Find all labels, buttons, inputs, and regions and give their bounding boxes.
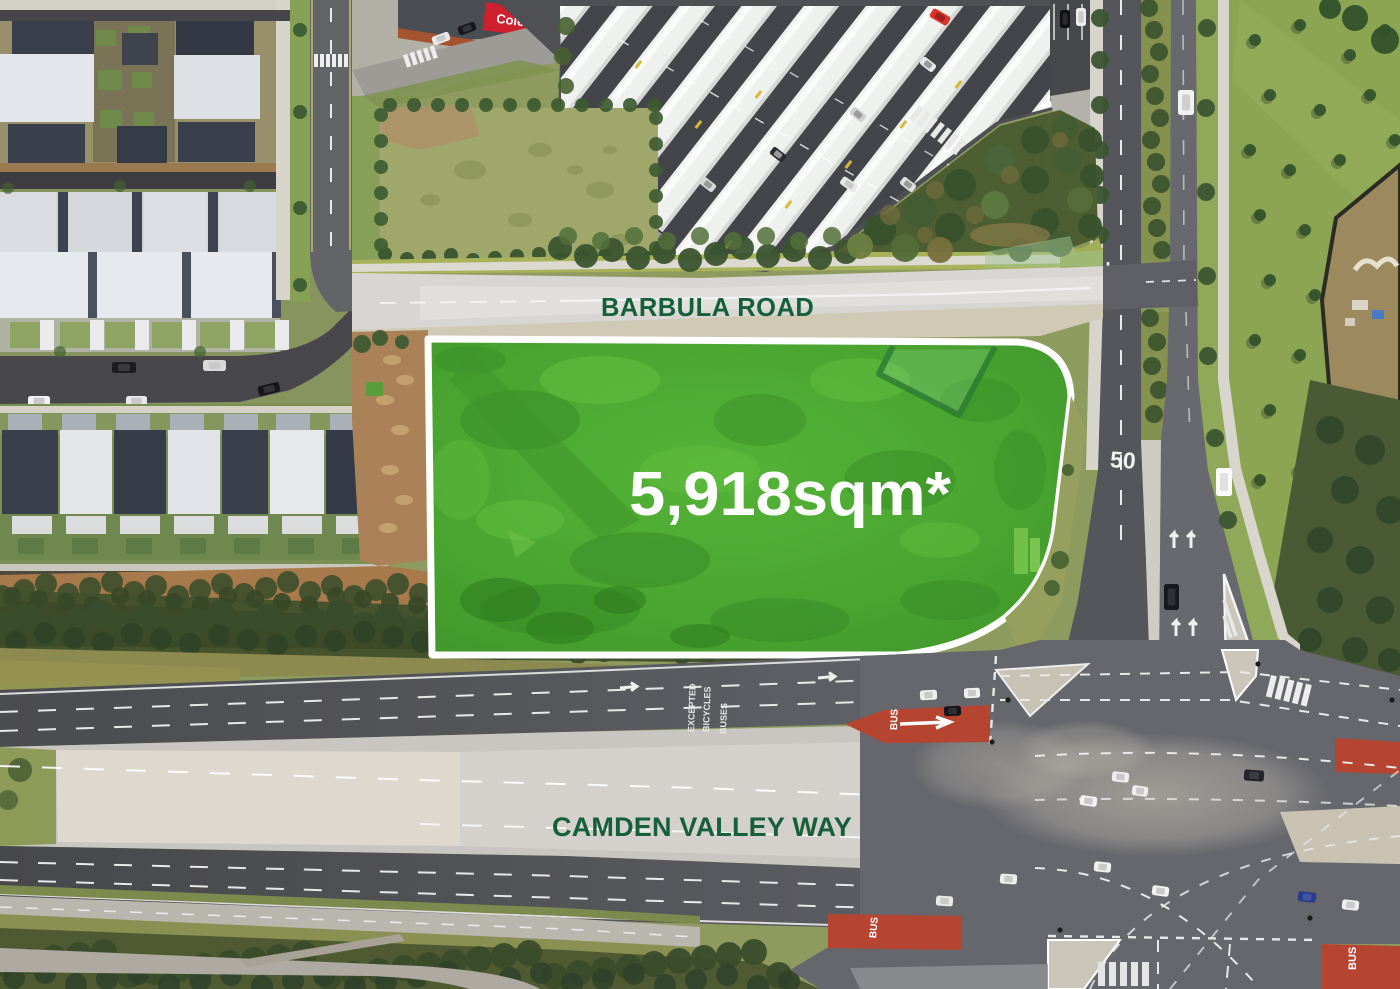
svg-text:5,918sqm*: 5,918sqm* (629, 460, 952, 529)
svg-text:50: 50 (1109, 446, 1136, 474)
svg-text:BICYCLES: BICYCLES (701, 686, 713, 732)
svg-text:BUS: BUS (868, 916, 881, 938)
svg-text:EXCEPTED: EXCEPTED (686, 683, 698, 732)
svg-text:BUS: BUS (1347, 947, 1359, 970)
svg-text:CAMDEN VALLEY WAY: CAMDEN VALLEY WAY (552, 812, 852, 842)
svg-text:BUSES: BUSES (718, 703, 729, 734)
svg-text:BARBULA ROAD: BARBULA ROAD (601, 294, 814, 322)
svg-text:BUS: BUS (889, 708, 901, 730)
